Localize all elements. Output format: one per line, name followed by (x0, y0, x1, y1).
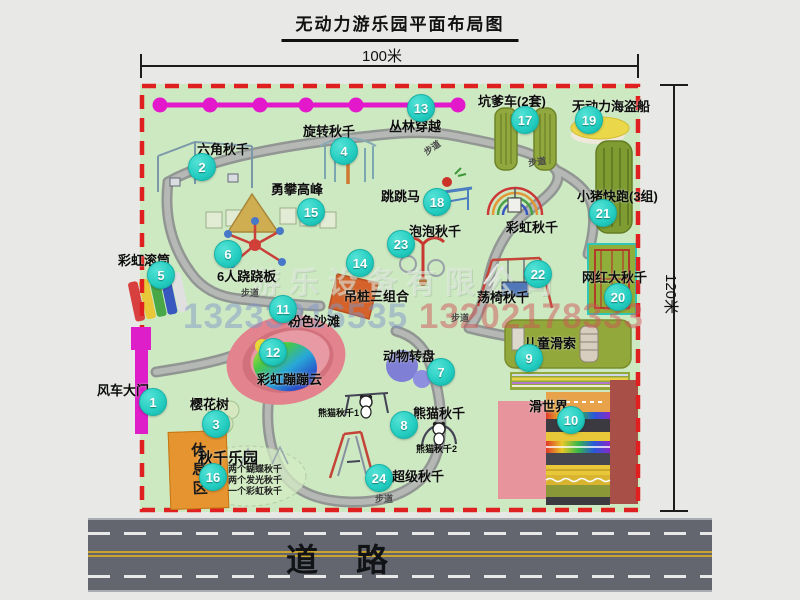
label-super-swing: 超级秋千 (392, 466, 444, 485)
dimension-tick-top-right (637, 54, 639, 78)
badge-climbing-peak: 15 (297, 198, 325, 226)
badge-rainbow-roller: 5 (147, 261, 175, 289)
label-climbing-peak: 勇攀高峰 (271, 179, 323, 198)
badge-hanging-post-combo: 14 (346, 249, 374, 277)
label-bubble-swing: 泡泡秋千 (409, 221, 461, 240)
dimension-tick-right-bottom (660, 510, 688, 512)
label-hanging-post-combo: 吊桩三组合 (344, 286, 409, 305)
road: 道路 (88, 518, 712, 592)
badge-bubble-swing: 23 (387, 230, 415, 258)
badge-panda-swing: 8 (390, 411, 418, 439)
watermark-phone: 13233816535 13202178333 (183, 297, 644, 337)
dimension-height-label: 120米 (661, 274, 682, 314)
badge-slide-world: 10 (557, 406, 585, 434)
label-animal-carousel: 动物转盘 (383, 346, 435, 365)
label-six-person-seesaw: 6人跷跷板 (217, 266, 276, 285)
label-piggy-run: 小猪快跑(3组) (577, 186, 658, 205)
badge-kengdie-car: 17 (511, 106, 539, 134)
badge-swing-chair: 22 (524, 260, 552, 288)
badge-hexagon-swing: 2 (188, 153, 216, 181)
dimension-width-label: 100米 (362, 45, 402, 66)
badge-rainbow-bounce-cloud: 12 (259, 338, 287, 366)
label-swing-chair: 荡椅秋千 (477, 287, 529, 306)
badge-viral-big-swing: 20 (604, 283, 632, 311)
dimension-tick-top-left (140, 54, 142, 78)
trail-label-2: 步道 (527, 154, 547, 169)
label-rainbow-bounce-cloud: 彩虹蹦蹦云 (257, 369, 322, 388)
swing-park-sub-2: 两个发光秋千 (228, 475, 282, 486)
badge-windmill-gate: 1 (139, 388, 167, 416)
page-title: 无动力游乐园平面布局图 (282, 10, 519, 42)
badge-pirate-ship: 19 (575, 106, 603, 134)
badge-pink-beach: 11 (269, 295, 297, 323)
dimension-tick-right-top (660, 84, 688, 86)
label-jumping-horse: 跳跳马 (381, 186, 420, 205)
label-panda-swing-1: 熊猫秋千1 (318, 406, 359, 419)
badge-super-swing: 24 (365, 464, 393, 492)
badge-jungle-crossing: 13 (407, 94, 435, 122)
label-kengdie-car: 坑爹车(2套) (478, 91, 546, 110)
badge-kids-zipline: 9 (515, 344, 543, 372)
badge-swing-park: 16 (199, 463, 227, 491)
badge-rotating-swing: 4 (330, 137, 358, 165)
swing-park-sub-3: 一个彩虹秋千 (228, 486, 282, 497)
badge-cherry-tree: 3 (202, 410, 230, 438)
label-panda-swing: 熊猫秋千 (413, 403, 465, 422)
trail-label-3: 步道 (241, 286, 259, 299)
badge-six-person-seesaw: 6 (214, 240, 242, 268)
badge-piggy-run: 21 (589, 199, 617, 227)
label-panda-swing-2: 熊猫秋千2 (416, 442, 457, 455)
label-rainbow-swing: 彩虹秋千 (506, 217, 558, 236)
playground-layout-map: { "title": "无动力游乐园平面布局图", "dimensions": … (0, 0, 800, 600)
road-label: 道路 (286, 535, 426, 581)
trail-label-5: 步道 (375, 492, 393, 505)
windmill-gate-icon (131, 327, 151, 350)
swing-park-sublist: 两个蝴蝶秋千 两个发光秋千 一个彩虹秋千 (228, 464, 282, 497)
trail-label-4: 步道 (451, 311, 469, 324)
badge-animal-carousel: 7 (427, 358, 455, 386)
badge-jumping-horse: 18 (423, 188, 451, 216)
swing-park-sub-1: 两个蝴蝶秋千 (228, 464, 282, 475)
